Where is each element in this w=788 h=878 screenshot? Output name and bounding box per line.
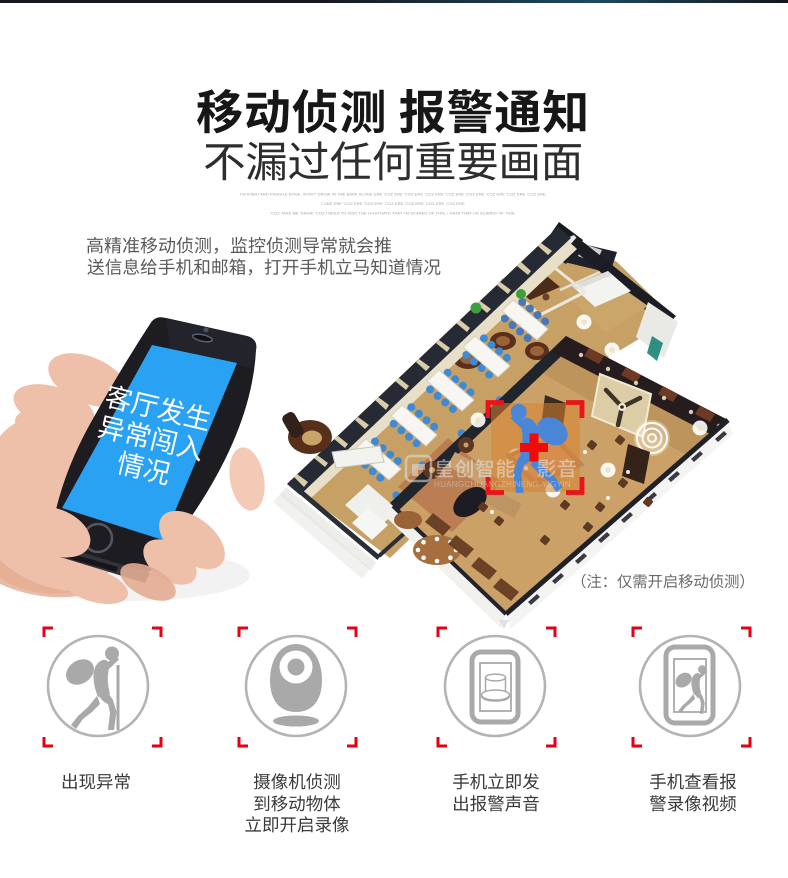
svg-text:LONE ERE 'COZ ERE 'COZ ERE 'CO: LONE ERE 'COZ ERE 'COZ ERE 'COZ ERE 'COZ… bbox=[321, 201, 465, 206]
svg-text:I'M A RED AND FRAGILE ROSE, WO: I'M A RED AND FRAGILE ROSE, WON'T GROW I… bbox=[240, 191, 546, 196]
svg-text:'COZ TAKE ME THERE 'COZ I NEED: 'COZ TAKE ME THERE 'COZ I NEED TO FIND T… bbox=[270, 210, 516, 215]
svg-text:HUANGCHUANGZHINENG·YIGYIN: HUANGCHUANGZHINENG·YIGYIN bbox=[434, 480, 571, 489]
